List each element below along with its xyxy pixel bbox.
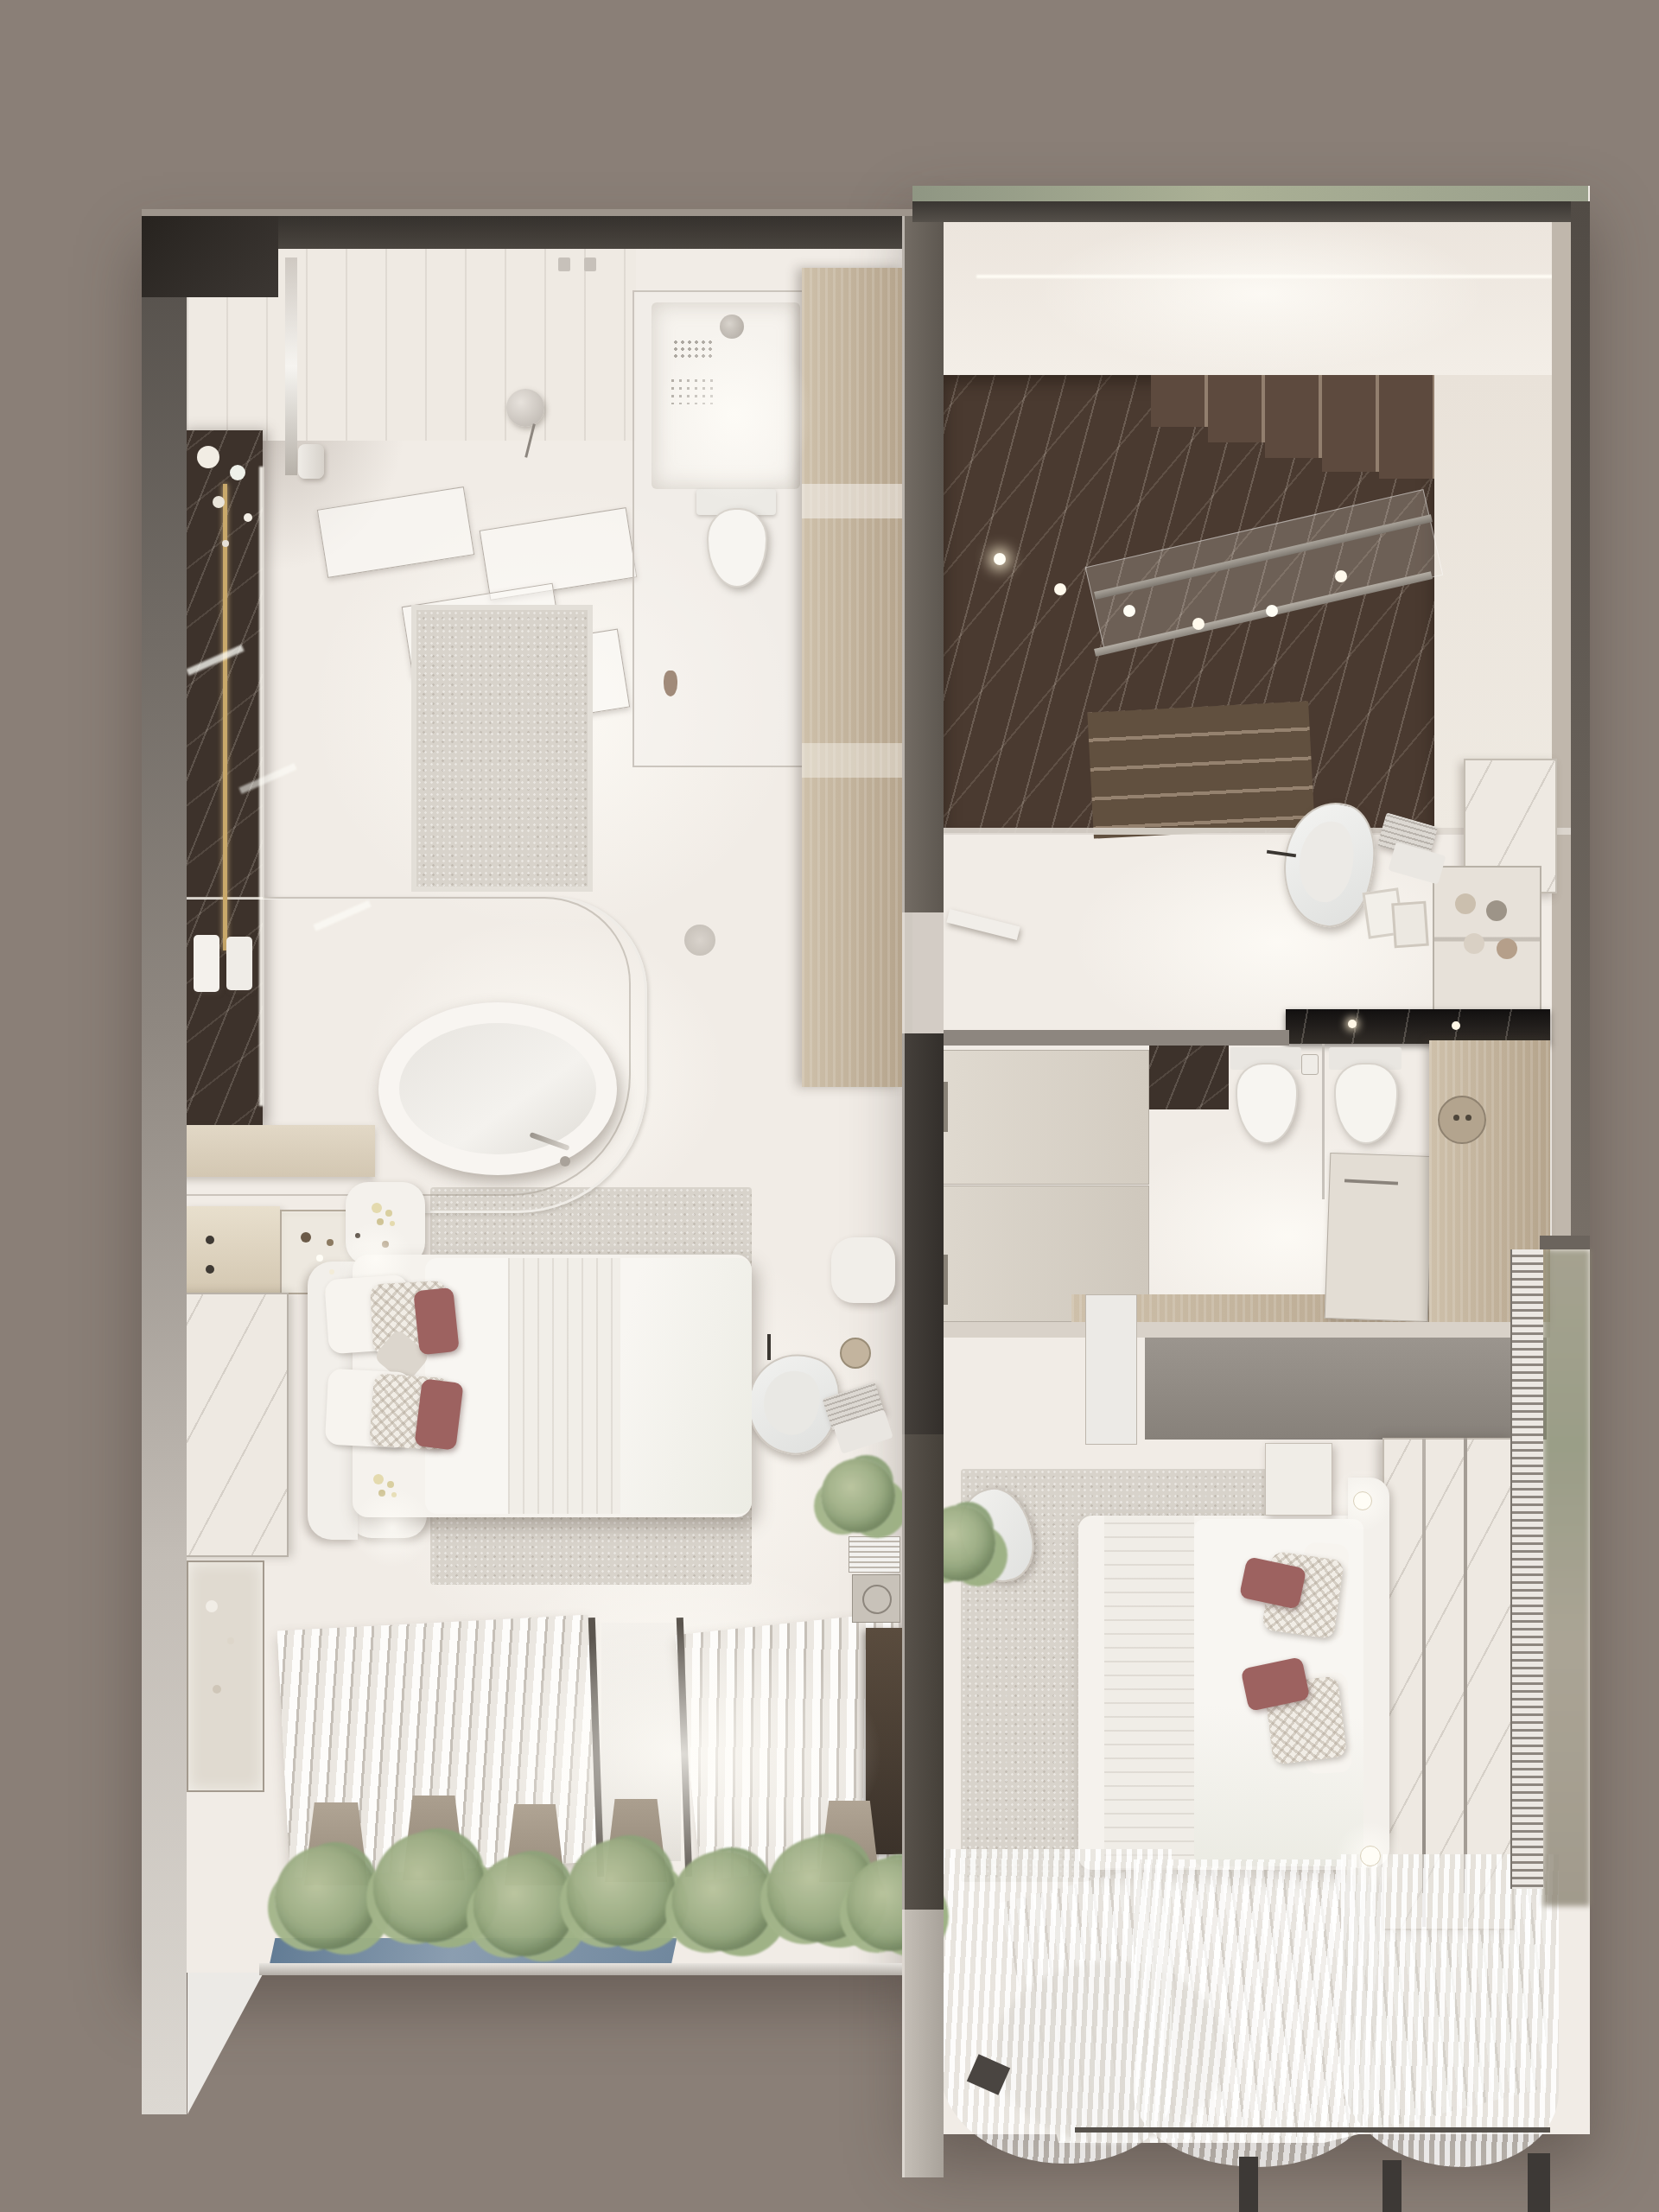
bath2-counter: [1286, 1009, 1550, 1044]
disc-side-table: [840, 1338, 871, 1369]
mullion-post-icon: [1382, 2160, 1402, 2212]
console-items-icon: [206, 1600, 218, 1612]
glass-display-console: [187, 1560, 264, 1792]
hook-pair-icon: [558, 257, 570, 271]
stair-spotlights-icon: [994, 553, 1006, 565]
bathroom-rug: [411, 605, 593, 892]
flowers-icon: [373, 1474, 384, 1484]
dresser-knobs-icon: [206, 1236, 214, 1244]
reading-stick-lamp-icon: [767, 1334, 771, 1360]
landing-led-line: [976, 275, 1555, 278]
wall-top-bevel: [142, 209, 912, 216]
vanity-led-edge: [259, 467, 264, 1106]
yarn-spools-icon: [1455, 893, 1476, 914]
olive-tree: [672, 1851, 774, 1951]
art-marble-wall: [175, 1293, 289, 1557]
door-handle-icon: [944, 1082, 948, 1132]
pendant-bulb-icon: [1360, 1846, 1381, 1866]
divider-highlight: [902, 216, 905, 2177]
shower-controls-icon: [669, 377, 714, 404]
crystal-sconce-icon: [316, 1255, 323, 1262]
wall-left-strip: [142, 249, 187, 2114]
pouf: [831, 1237, 895, 1303]
wall-corner-cap: [142, 216, 278, 297]
magnolia-flowers-icon: [197, 446, 219, 468]
towel-roll-icon: [298, 444, 324, 479]
speaker-cone-icon: [862, 1585, 892, 1614]
mullion-post-icon: [1528, 2153, 1550, 2212]
shelf-unit: [1433, 866, 1541, 1013]
exterior-greenery-blur: [1543, 1249, 1590, 1906]
flowers-icon: [372, 1203, 382, 1213]
picture-frame: [1391, 901, 1429, 949]
divider-wall-glass: [902, 1033, 944, 1434]
perfume-dresser: [185, 1206, 280, 1293]
towel: [226, 937, 252, 990]
gold-towel-rail-icon: [223, 484, 227, 950]
divider-door-gap: [902, 912, 944, 1033]
wall-right-step: [1540, 1236, 1590, 1249]
pillow-maroon: [413, 1287, 459, 1355]
bookshelf: [849, 1536, 900, 1573]
bath2-cabinet: [1325, 1153, 1434, 1322]
round-control-disc-icon: [1438, 1096, 1486, 1144]
door-handle-icon: [944, 1255, 948, 1305]
bathtub-basin: [399, 1023, 596, 1154]
glass-partition: [1322, 1044, 1325, 1199]
toilet-paper-holder-icon: [1301, 1054, 1319, 1075]
olive-tree: [275, 1846, 378, 1949]
divider-wall: [902, 216, 944, 912]
bath2-bottom-wall: [937, 1322, 1550, 1338]
pendant-bulb-icon: [1353, 1491, 1372, 1510]
counter-lights-icon: [1348, 1020, 1357, 1028]
wall-top-right: [912, 201, 1588, 222]
left-wing-corner-face: [188, 1973, 264, 2114]
pillow-maroon: [414, 1378, 463, 1450]
bed2-knit-runner: [1104, 1516, 1194, 1870]
duvet-fold-band: [508, 1258, 620, 1514]
bulkhead-band: [1145, 1338, 1547, 1440]
wall-sconce-disc-icon: [506, 389, 544, 427]
wardrobe-door-panel: [937, 1050, 1149, 1185]
divider-wall-lower: [902, 1434, 944, 1910]
olive-tree: [567, 1839, 676, 1946]
olive-tree: [474, 1854, 575, 1956]
mirror-sliver: [285, 257, 297, 475]
plant-pot: [821, 1459, 895, 1533]
shower-controls-icon: [672, 339, 712, 361]
stair-lower-flight: [1087, 701, 1314, 838]
wall-top-right-marble: [912, 186, 1588, 201]
tub-faucet-base-icon: [560, 1156, 570, 1166]
nightstand-square: [1265, 1443, 1332, 1516]
upper-landing: [944, 220, 1573, 376]
terrace-bottom-bar: [259, 1963, 912, 1975]
towel: [194, 935, 219, 992]
rain-shower-head-icon: [720, 315, 744, 339]
perfume-bottles-icon: [301, 1232, 311, 1243]
control-dots-icon: [1453, 1115, 1459, 1121]
wall-right-strip: [1571, 201, 1590, 1249]
wood-wardrobe-column: [802, 268, 904, 1087]
wood-wardrobe-break: [802, 484, 904, 518]
divider-glass-bottom: [902, 1910, 944, 2177]
curtain-rail-icon: [1075, 2127, 1550, 2133]
olive-tree: [373, 1832, 486, 1942]
closet-white-cabinet: [1085, 1294, 1137, 1445]
ceiling-spot-icon: [684, 925, 715, 956]
mullion-post-icon: [1239, 2157, 1258, 2212]
study-bath-wall: [944, 1030, 1289, 1046]
louver-fin-facade: [1510, 1249, 1543, 1889]
wood-wardrobe-break: [802, 743, 904, 778]
nightstand-round: [346, 1182, 425, 1265]
render-canvas: { "scene": { "type": "3d-floorplan-rende…: [0, 0, 1659, 2212]
sheer-curtain: [1341, 1854, 1559, 2167]
